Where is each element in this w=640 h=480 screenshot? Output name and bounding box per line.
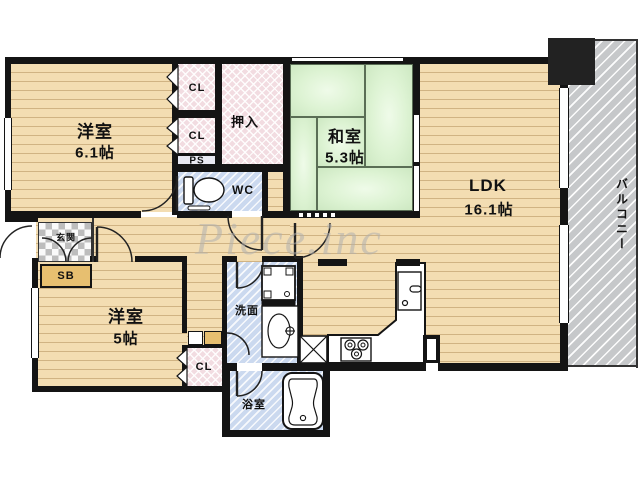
shoe-box-label: SB xyxy=(57,270,74,282)
washroom-label: 洗面 xyxy=(235,302,259,318)
western2-door-swing xyxy=(97,227,132,262)
cabinet-door-swing xyxy=(227,333,249,355)
balcony-label: バルコニー xyxy=(614,178,631,253)
toilet-icon xyxy=(184,177,224,210)
front-door-swing xyxy=(0,226,32,258)
bathroom-door-swing xyxy=(237,371,262,396)
entrance-label: 玄関 xyxy=(56,231,76,244)
western1-door-swing xyxy=(142,176,177,211)
wc-label: WC xyxy=(232,183,254,197)
stove-icon xyxy=(341,338,371,361)
room-western1-name: 洋室 xyxy=(77,118,113,143)
closet3-label: CL xyxy=(196,361,213,373)
bathroom-label: 浴室 xyxy=(242,396,266,412)
room-ldk-size: 16.1帖 xyxy=(464,199,513,220)
bifold-door-marks xyxy=(167,66,187,385)
bathtub-icon xyxy=(283,373,323,429)
closet2-label: CL xyxy=(189,130,206,142)
vanity-sink-icon xyxy=(262,306,298,357)
watermark: Piece.inc xyxy=(195,212,383,265)
room-japanese-name: 和室 xyxy=(328,123,362,147)
room-western2-name: 洋室 xyxy=(108,303,144,328)
washroom-door-swing xyxy=(237,262,263,288)
pipe-space-label: PS xyxy=(189,156,204,167)
room-ldk-name: LDK xyxy=(469,176,507,196)
washing-machine-icon xyxy=(262,266,295,305)
refrigerator-space-icon xyxy=(300,336,327,363)
closet1-label: CL xyxy=(189,82,206,94)
floorplan-page: { "watermark": "Piece.inc", "rooms": { "… xyxy=(0,0,640,480)
oshiire-label: 押入 xyxy=(231,112,259,131)
room-western1-size: 6.1帖 xyxy=(75,142,115,163)
room-western2-size: 5帖 xyxy=(113,328,138,349)
room-japanese-size: 5.3帖 xyxy=(325,147,365,168)
